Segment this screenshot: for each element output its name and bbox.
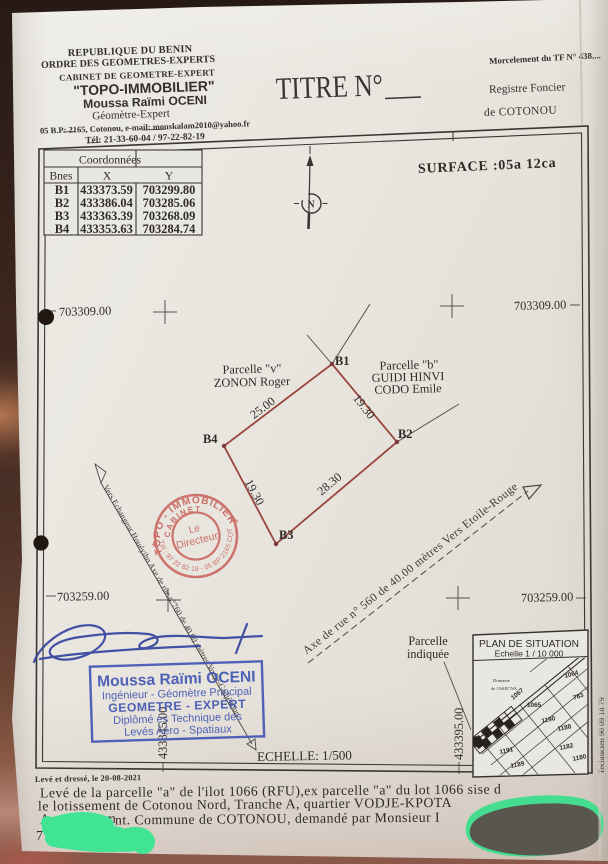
svg-text:B4: B4 [55, 222, 69, 236]
svg-text:703309.00: 703309.00 [59, 304, 112, 319]
svg-text:B2: B2 [55, 196, 69, 210]
svg-text:X: X [103, 171, 112, 183]
svg-text:N: N [307, 200, 315, 211]
svg-text:B3: B3 [279, 528, 293, 542]
svg-text:703284.74: 703284.74 [143, 222, 196, 236]
svg-text:indiquée: indiquée [407, 647, 449, 661]
svg-text:433363.39: 433363.39 [80, 209, 133, 223]
svg-text:CODO Emile: CODO Emile [374, 381, 442, 397]
svg-text:B4: B4 [203, 432, 217, 446]
svg-text:703285.06: 703285.06 [143, 196, 196, 210]
svg-text:Géomètre-Expert: Géomètre-Expert [92, 108, 171, 123]
svg-text:ZONON Roger: ZONON Roger [214, 374, 291, 390]
svg-text:703299.80: 703299.80 [143, 183, 196, 197]
svg-text:B2: B2 [398, 427, 412, 441]
svg-text:7: 7 [36, 828, 43, 843]
svg-text:19.30: 19.30 [242, 477, 267, 508]
svg-text:Morcelement du TF N° 438....: Morcelement du TF N° 438.... [489, 50, 601, 66]
svg-text:ECHELLE: 1/500: ECHELLE: 1/500 [257, 747, 353, 764]
svg-text:433373.59: 433373.59 [80, 183, 133, 197]
svg-text:Echelle 1 / 10 000: Echelle 1 / 10 000 [495, 649, 564, 659]
svg-text:SURFACE :05a 12ca: SURFACE :05a 12ca [418, 156, 557, 177]
svg-text:de COTONOU: de COTONOU [484, 104, 557, 119]
svg-text:TITRE N°: TITRE N° [275, 67, 383, 106]
svg-text:Levés Aéro - Spatiaux: Levés Aéro - Spatiaux [124, 723, 232, 738]
svg-text:433353.63: 433353.63 [80, 222, 133, 236]
svg-text:703309.00: 703309.00 [514, 298, 567, 313]
svg-text:Parcelle: Parcelle [408, 634, 447, 648]
svg-text:Coordonnées: Coordonnées [79, 153, 142, 167]
svg-text:Registre Foncier: Registre Foncier [489, 81, 566, 96]
svg-text:Bnes: Bnes [50, 171, 74, 183]
svg-text:433395.00: 433395.00 [452, 708, 466, 760]
svg-text:703259.00: 703259.00 [521, 590, 574, 605]
svg-text:Levé et dressé, le 20-08-2021: Levé et dressé, le 20-08-2021 [35, 773, 141, 784]
svg-text:de l'ASECNA: de l'ASECNA [491, 686, 518, 691]
svg-text:Y: Y [165, 171, 174, 183]
svg-text:Axe de rue n° 560 de 40.00 mèt: Axe de rue n° 560 de 40.00 mètres Vers E… [300, 480, 520, 657]
svg-text:703268.09: 703268.09 [143, 209, 196, 223]
svg-text:B1: B1 [335, 354, 349, 368]
svg-text:nt. Commune de COTONOU, demand: nt. Commune de COTONOU, demandé par Mons… [115, 810, 440, 828]
svg-text:703259.00: 703259.00 [57, 589, 110, 604]
svg-text:B1: B1 [55, 183, 69, 197]
svg-text:B3: B3 [55, 209, 69, 223]
svg-text:1065: 1065 [527, 702, 542, 709]
svg-text:Domaine: Domaine [493, 678, 510, 683]
svg-text:28.30: 28.30 [314, 470, 344, 498]
svg-text:433386.04: 433386.04 [80, 196, 133, 210]
